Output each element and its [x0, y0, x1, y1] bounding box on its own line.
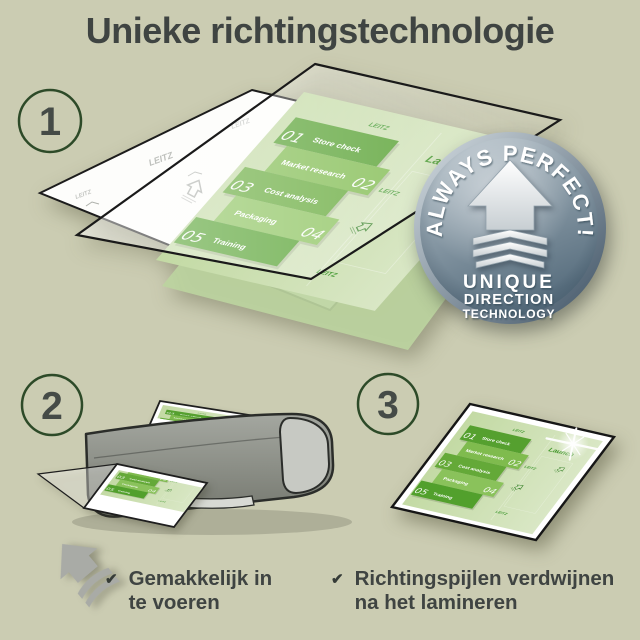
step3-number: 3: [377, 384, 399, 427]
badge-line2: DIRECTION: [464, 292, 555, 308]
checklist-text-line1: Richtingspijlen verdwijnen: [355, 567, 615, 590]
step1-number: 1: [39, 100, 61, 144]
illustration-canvas: LEITZ LEITZ LEITZ LEITZ: [0, 0, 640, 640]
checklist-item: ✔ Gemakkelijk in te voeren: [105, 567, 272, 615]
checklist-text-line2: na het lamineren: [355, 591, 518, 614]
infographic: Unieke richtingstechnologie: [0, 0, 640, 640]
checklist-text-line2: te voeren: [129, 591, 220, 614]
badge: ALWAYS PERFECT! UNIQUE DIRECTION TECHNOL…: [414, 132, 606, 324]
badge-line3: TECHNOLOGY: [463, 307, 556, 321]
laminator-end-cap: [280, 418, 329, 493]
badge-line1: UNIQUE: [463, 272, 555, 293]
check-icon: ✔: [105, 570, 118, 588]
check-icon: ✔: [331, 570, 344, 588]
step2-number: 2: [41, 385, 63, 428]
step3-group: 3: [358, 374, 614, 540]
checklist-text-line1: Gemakkelijk in: [129, 567, 273, 590]
checklist-item: ✔ Richtingspijlen verdwijnen na het lami…: [331, 567, 614, 615]
output-sheet: [392, 404, 614, 540]
